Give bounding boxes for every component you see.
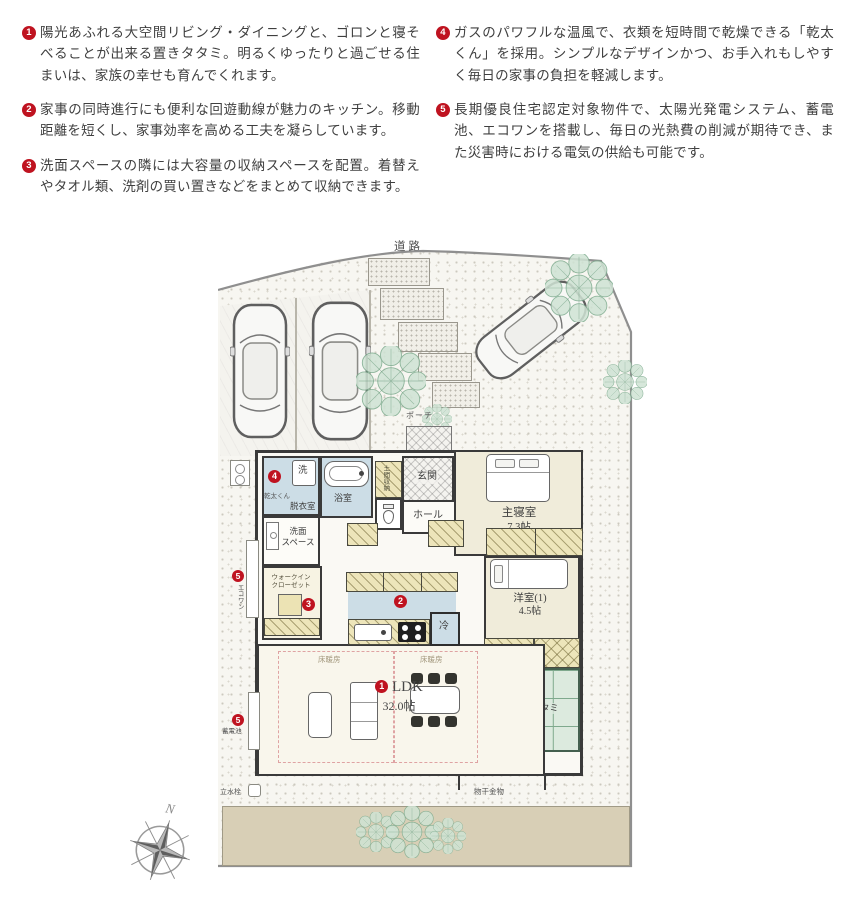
utility-meter [230, 460, 250, 486]
note-text: 陽光あふれる大空間リビング・ダイニングと、ゴロンと寝そべることが出来る置きタタミ… [40, 25, 420, 83]
site-plan: 道路 ポーチ [218, 240, 648, 872]
ldk-label: 1 LDK 32.0帖 [364, 678, 434, 716]
sink-icon [354, 624, 392, 641]
parking-stall-line [295, 290, 297, 456]
plan-marker-5: 5 [232, 714, 244, 726]
stepping-stone [418, 353, 472, 381]
toilet-icon [383, 510, 394, 524]
water-tap-label: 立水栓 [220, 788, 241, 797]
chair-icon [445, 673, 457, 684]
tree-icon [603, 360, 647, 404]
chair-icon [411, 716, 423, 727]
note-number-badge: 2 [22, 103, 36, 117]
drain-icon [359, 471, 364, 476]
western-room-name: 洋室(1) [513, 593, 546, 604]
main-bedroom-name: 主寝室 [502, 507, 537, 519]
entry-storage-label: 土間収納 [381, 465, 388, 491]
note-item: 3洗面スペースの隣には大容量の収納スペースを配置。着替えやタオル類、洗剤の買い置… [22, 155, 420, 198]
plan-marker-3: 3 [302, 598, 315, 611]
note-number-badge: 1 [22, 26, 36, 40]
laundry-hardware-label: 物干金物 [474, 787, 504, 796]
floor-heating-label: 床暖房 [318, 655, 341, 664]
laundry-pole-tick [544, 776, 546, 790]
burner-icon [415, 625, 421, 631]
note-item: 5長期優良住宅認定対象物件で、太陽光発電システム、蓄電池、エコワンを搭載し、毎日… [436, 99, 834, 163]
cabinet-divider [383, 573, 384, 591]
entrance-label: 玄関 [416, 471, 438, 484]
walkin-closet-label-2: クローゼット [272, 582, 311, 589]
western-room-size: 4.5帖 [519, 606, 542, 617]
corridor-closet [347, 523, 378, 546]
water-tap-icon [248, 784, 261, 797]
meter-dial-icon [235, 475, 245, 485]
refrigerator-label: 冷 [439, 621, 449, 634]
dresser-icon [278, 594, 302, 616]
ldk-name: LDK [392, 679, 423, 695]
porch [406, 426, 452, 452]
ldk-size: 32.0帖 [382, 699, 415, 713]
burner-icon [402, 625, 408, 631]
kitchen-upper-cabinets [346, 572, 458, 592]
note-text: 洗面スペースの隣には大容量の収納スペースを配置。着替えやタオル類、洗剤の買い置き… [40, 158, 420, 194]
stove-icon [398, 622, 426, 642]
bush-icon [430, 818, 466, 854]
faucet-icon [381, 630, 386, 635]
note-text: ガスのパワフルな温風で、衣類を短時間で乾燥できる「乾太くん」を採用。シンプルなデ… [454, 25, 834, 83]
compass-rose-icon: N [122, 798, 198, 888]
battery-label: 蓄電池 [222, 728, 242, 736]
car-icon [230, 296, 290, 446]
walkin-closet-label: ウォークイン クローゼット [262, 574, 320, 590]
note-item: 2家事の同時進行にも便利な回遊動線が魅力のキッチン。移動距離を短くし、家事効率を… [22, 99, 420, 142]
tree-icon [545, 254, 613, 322]
chair-icon [445, 716, 457, 727]
ecoone-label: エコワン [235, 584, 243, 610]
chair-icon [428, 716, 440, 727]
bed-icon [486, 454, 550, 502]
room-toilet [375, 498, 402, 530]
washer-label: 洗 [298, 466, 308, 478]
stepping-stone [368, 258, 430, 286]
pillow-icon [494, 565, 503, 583]
bed-line [487, 472, 549, 473]
changing-room-label: 脱衣室 [290, 501, 316, 512]
stepping-stone [380, 288, 444, 320]
bedroom-closet [486, 528, 583, 556]
notes-column-right: 4ガスのパワフルな温風で、衣類を短時間で乾燥できる「乾太くん」を採用。シンプルな… [436, 22, 834, 176]
pillow-icon [519, 459, 539, 468]
porch-label: ポーチ [406, 411, 433, 421]
tree-icon [356, 346, 426, 416]
note-number-badge: 4 [436, 26, 450, 40]
washstand-label-1: 洗面 [289, 526, 306, 536]
shelf-line [351, 721, 377, 722]
toilet-tank-icon [383, 504, 394, 509]
laundry-pole-tick [458, 776, 460, 790]
ecoone-unit [246, 540, 259, 618]
washstand-label-2: スペース [282, 537, 315, 547]
walkin-closet-label-1: ウォークイン [272, 574, 311, 581]
bathtub-icon [324, 461, 369, 487]
bathtub-inner [329, 466, 363, 481]
note-item: 4ガスのパワフルな温風で、衣類を短時間で乾燥できる「乾太くん」を採用。シンプルな… [436, 22, 834, 86]
plan-marker-1: 1 [375, 680, 388, 693]
bed-icon [490, 559, 568, 589]
note-number-badge: 3 [22, 159, 36, 173]
note-item: 1陽光あふれる大空間リビング・ダイニングと、ゴロンと寝そべることが出来る置きタタ… [22, 22, 420, 86]
meter-dial-icon [235, 464, 245, 474]
note-number-badge: 5 [436, 103, 450, 117]
walkin-closet-shelf [264, 618, 320, 636]
battery-unit [248, 692, 260, 750]
notes-column-left: 1陽光あふれる大空間リビング・ダイニングと、ゴロンと寝そべることが出来る置きタタ… [22, 22, 420, 210]
burner-icon [402, 634, 408, 640]
cabinet-divider [421, 573, 422, 591]
gas-dryer-label: 乾太くん [264, 493, 290, 501]
plan-marker-2: 2 [394, 595, 407, 608]
pillow-icon [495, 459, 515, 468]
burner-icon [415, 634, 421, 640]
closet-divider [535, 529, 536, 555]
bed-line [508, 560, 509, 588]
plan-marker-5: 5 [232, 570, 244, 582]
western-room-label: 洋室(1) 4.5帖 [490, 592, 570, 619]
floor-heating-label: 床暖房 [420, 655, 443, 664]
washstand-label: 洗面 スペース [276, 526, 320, 547]
note-text: 家事の同時進行にも便利な回遊動線が魅力のキッチン。移動距離を短くし、家事効率を高… [40, 102, 420, 138]
plan-marker-4: 4 [268, 470, 281, 483]
compass-north-label: N [163, 800, 177, 817]
note-text: 長期優良住宅認定対象物件で、太陽光発電システム、蓄電池、エコワンを搭載し、毎日の… [454, 102, 834, 160]
bathroom-label: 浴室 [334, 493, 352, 504]
corridor-closet [428, 520, 464, 547]
low-table-icon [308, 692, 332, 738]
page: 1陽光あふれる大空間リビング・ダイニングと、ゴロンと寝そべることが出来る置きタタ… [0, 0, 848, 900]
